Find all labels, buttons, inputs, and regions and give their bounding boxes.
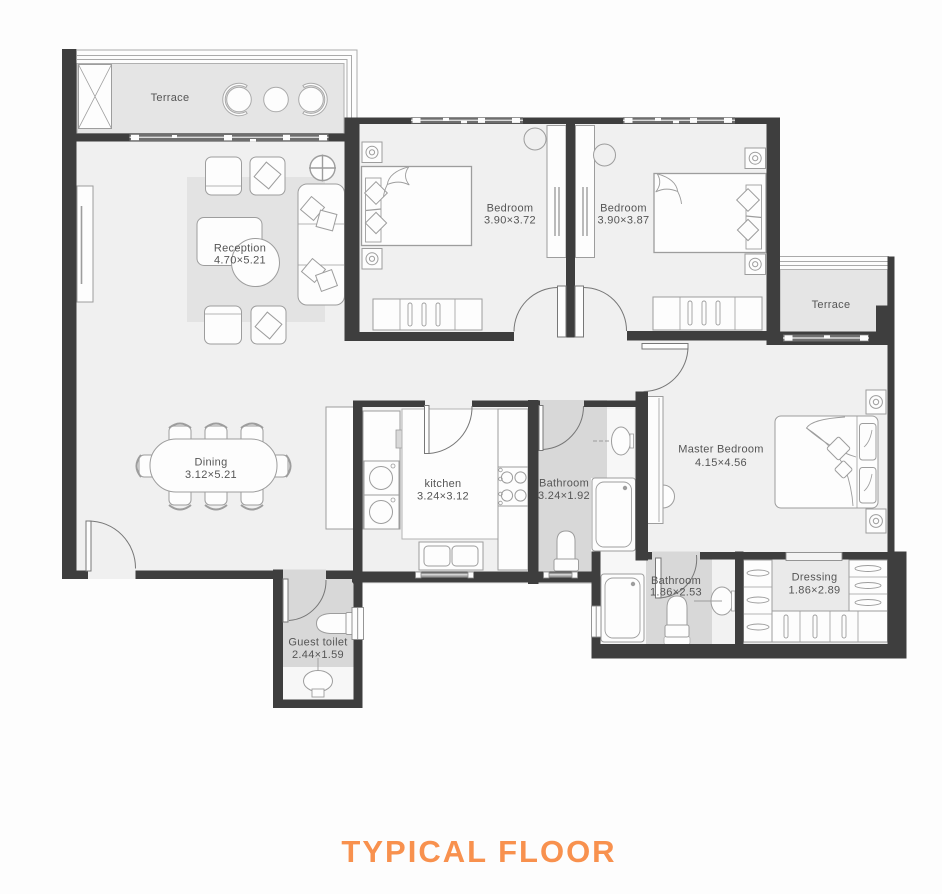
svg-text:TYPICAL FLOOR: TYPICAL FLOOR bbox=[341, 834, 616, 869]
svg-text:Bedroom: Bedroom bbox=[600, 203, 647, 215]
svg-text:3.24×3.12: 3.24×3.12 bbox=[417, 491, 469, 503]
svg-text:4.70×5.21: 4.70×5.21 bbox=[214, 255, 266, 267]
svg-text:3.12×5.21: 3.12×5.21 bbox=[185, 469, 237, 481]
svg-text:Bedroom: Bedroom bbox=[487, 203, 534, 215]
svg-text:Dressing: Dressing bbox=[792, 572, 838, 584]
svg-text:Guest toilet: Guest toilet bbox=[288, 637, 347, 649]
svg-text:kitchen: kitchen bbox=[425, 478, 462, 490]
svg-text:Terrace: Terrace bbox=[151, 92, 190, 104]
svg-text:Terrace: Terrace bbox=[812, 299, 851, 311]
svg-text:2.44×1.59: 2.44×1.59 bbox=[292, 649, 344, 661]
svg-text:Master Bedroom: Master Bedroom bbox=[678, 444, 764, 456]
svg-text:1.86×2.53: 1.86×2.53 bbox=[650, 587, 702, 599]
svg-text:Dining: Dining bbox=[195, 457, 228, 469]
svg-text:3.24×1.92: 3.24×1.92 bbox=[538, 490, 590, 502]
svg-text:3.90×3.87: 3.90×3.87 bbox=[598, 215, 650, 227]
svg-text:1.86×2.89: 1.86×2.89 bbox=[789, 585, 841, 597]
svg-text:3.90×3.72: 3.90×3.72 bbox=[484, 215, 536, 227]
svg-text:Bathroom: Bathroom bbox=[651, 575, 701, 587]
svg-text:4.15×4.56: 4.15×4.56 bbox=[695, 457, 747, 469]
svg-text:Bathroom: Bathroom bbox=[539, 478, 589, 490]
svg-text:Reception: Reception bbox=[214, 243, 266, 255]
